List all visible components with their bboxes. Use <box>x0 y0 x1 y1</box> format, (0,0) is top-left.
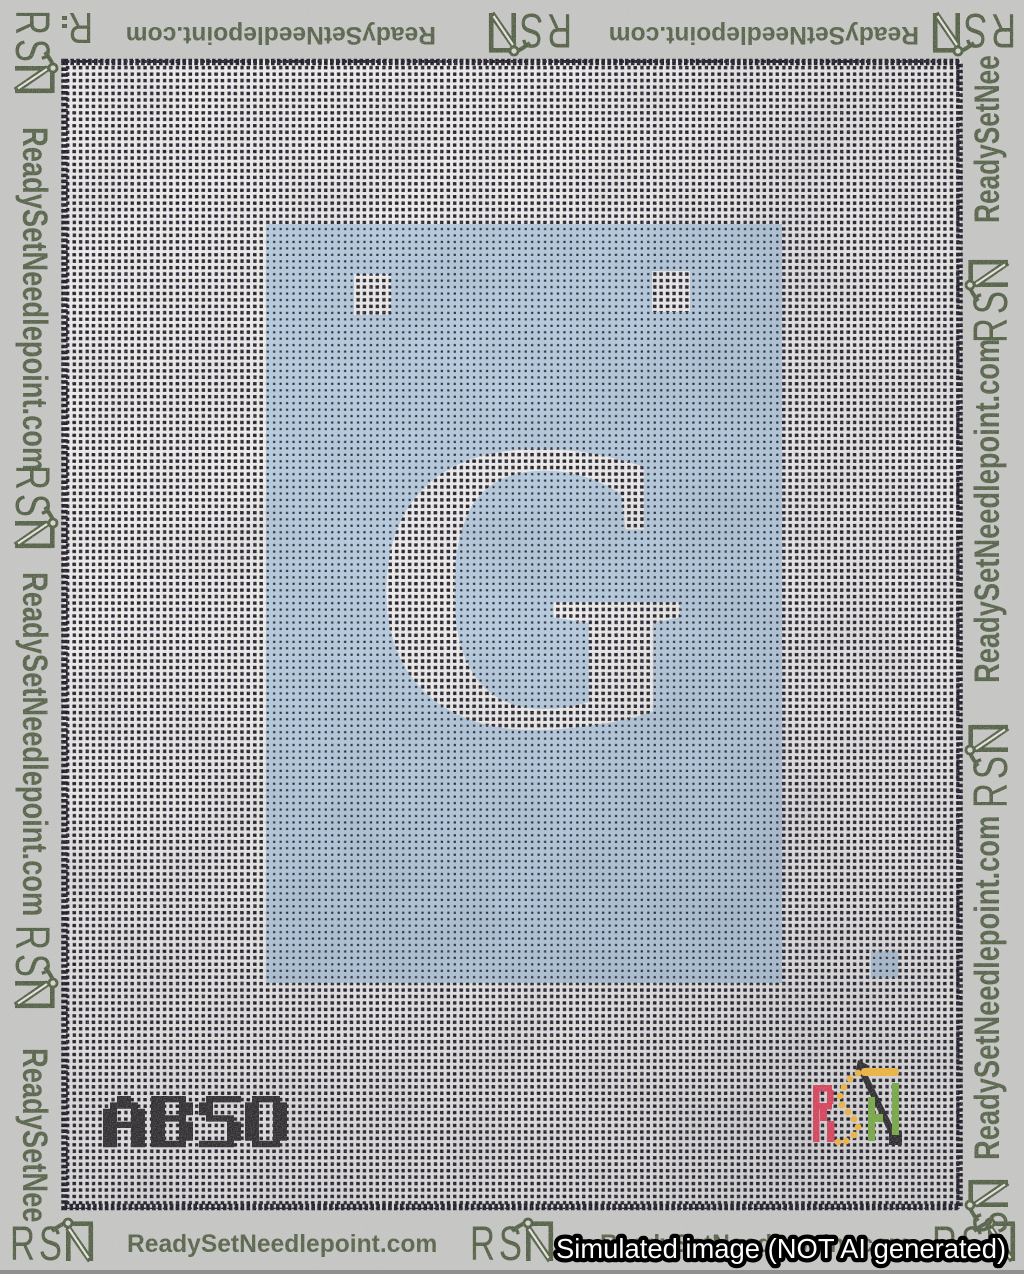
svg-text:Simulated image (NOT AI genera: Simulated image (NOT AI generated) <box>556 1233 1006 1264</box>
